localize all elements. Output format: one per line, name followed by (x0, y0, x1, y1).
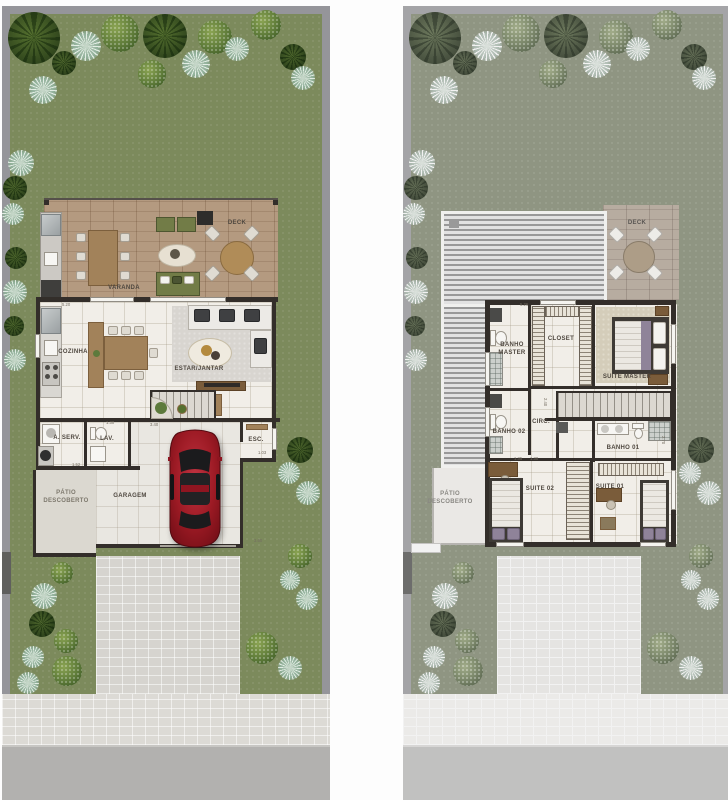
round-table-dark (211, 351, 220, 360)
fern-plant-icon (278, 462, 300, 484)
fern-plant-icon (2, 203, 24, 225)
burner (53, 374, 58, 379)
car (168, 427, 222, 549)
esc-shelf (246, 424, 268, 430)
window (540, 300, 576, 305)
tree-icon (430, 611, 456, 637)
room-label-a-serv: A. SERV. (50, 435, 84, 443)
fern-plant-icon (697, 588, 719, 610)
floor-plan-image: VARANDA DECK (0, 0, 728, 800)
wall (592, 421, 595, 462)
chair (120, 252, 130, 261)
fern-plant-icon (403, 203, 425, 225)
patio-wall (33, 553, 96, 557)
tree-icon (251, 10, 281, 40)
wall (590, 461, 593, 542)
tree-icon (287, 437, 313, 463)
fern-plant-icon (8, 150, 34, 176)
tree-icon (689, 544, 713, 568)
deck-post (44, 200, 49, 205)
pillow (653, 322, 666, 344)
dimension: 2.40 (543, 398, 547, 406)
ground-floor-plan: VARANDA DECK (0, 0, 364, 800)
outdoor-armchair (156, 217, 175, 232)
tree-icon (246, 632, 278, 664)
wall (531, 386, 676, 389)
pillow (655, 528, 666, 540)
tree-icon (52, 51, 76, 75)
wall (240, 458, 243, 548)
fern-plant-icon (697, 481, 721, 505)
tree-icon (502, 14, 540, 52)
tree-icon (143, 14, 187, 58)
fern-plant-icon (626, 37, 650, 61)
tree-icon (4, 316, 24, 336)
window (496, 542, 524, 547)
wardrobe (598, 463, 664, 476)
esc-window (272, 428, 277, 450)
pillow (643, 528, 654, 540)
tree-icon (652, 10, 682, 40)
fern-plant-icon (296, 481, 320, 505)
tree-icon (29, 611, 55, 637)
sink (615, 425, 623, 433)
chair (134, 371, 144, 380)
fern-plant-icon (278, 656, 302, 680)
fern-plant-icon (432, 583, 458, 609)
window (640, 542, 666, 547)
metal-roof-wing (441, 304, 491, 468)
fern-plant-icon (423, 646, 445, 668)
wall (240, 422, 243, 442)
fern-plant-icon (404, 280, 428, 304)
dimension: 1.35 (514, 457, 522, 461)
fridge (41, 308, 61, 334)
tree-icon (54, 629, 78, 653)
toilet-bowl (495, 415, 507, 429)
dimension: 2.70 (661, 436, 665, 444)
tree-icon (453, 51, 477, 75)
tree-icon (688, 437, 714, 463)
sofa-cushion (244, 309, 260, 322)
room-label-banho-02: BANHO 02 (492, 429, 526, 437)
tree-icon (3, 176, 27, 200)
fern-plant-icon (430, 76, 458, 104)
fern-plant-icon (182, 50, 210, 78)
chair (108, 326, 118, 335)
outdoor-fridge (41, 214, 61, 236)
room-label-deck: DECK (222, 220, 252, 228)
room-label-garagem: GARAGEM (106, 493, 154, 501)
fern-plant-icon (418, 672, 440, 694)
tree-icon (406, 247, 428, 269)
lav-sink (90, 446, 106, 462)
deck-post (273, 200, 278, 205)
sofa-cushion (254, 338, 267, 354)
wall (128, 422, 131, 466)
fern-plant-icon (583, 50, 611, 78)
shower (489, 436, 503, 454)
toilet-bowl (634, 428, 643, 439)
pouf (600, 517, 616, 530)
outdoor-armchair (177, 217, 196, 232)
bbq-grill (197, 211, 213, 225)
room-label-closet: CLOSET (544, 336, 578, 344)
patio-floor (36, 470, 96, 557)
island-plant (93, 350, 100, 357)
fern-plant-icon (280, 570, 300, 590)
tree-icon (52, 656, 82, 686)
pillow (653, 348, 666, 370)
outdoor-sink (44, 252, 58, 266)
window (671, 470, 676, 510)
dimension: 5.20 (62, 303, 70, 307)
dimension: 3.60 (254, 539, 262, 543)
sliding-door (90, 297, 134, 302)
coffee-table (170, 249, 180, 259)
room-label-banho-master: BANHO MASTER (496, 342, 528, 358)
fern-plant-icon (225, 37, 249, 61)
tree-icon (288, 544, 312, 568)
patio-wall (33, 470, 36, 557)
chair (149, 348, 158, 358)
burner (53, 365, 58, 370)
tree-icon (455, 629, 479, 653)
room-label-cozinha: COZINHA (56, 349, 90, 357)
metal-roof (441, 211, 607, 307)
pillow (492, 528, 505, 540)
wall (240, 458, 276, 462)
fern-plant-icon (22, 646, 44, 668)
tree-icon (453, 656, 483, 686)
wall (592, 305, 595, 386)
fern-plant-icon (681, 570, 701, 590)
burner (45, 374, 50, 379)
sofa-cushion (194, 309, 210, 322)
wardrobe (579, 306, 592, 386)
sofa-pillow (160, 276, 170, 284)
pillow (507, 528, 520, 540)
room-label-circ: CIRC. (528, 419, 554, 427)
wall (36, 466, 140, 470)
fern-plant-icon (692, 66, 716, 90)
roof-corner-tab (449, 220, 459, 228)
chair (120, 271, 130, 280)
tree-icon (51, 562, 73, 584)
sofa-pillow (172, 276, 182, 284)
sofa-cushion (219, 309, 235, 322)
tree-icon (138, 60, 166, 88)
tree-icon (452, 562, 474, 584)
desk-chair (606, 500, 616, 510)
fern-plant-icon (472, 31, 502, 61)
wall (528, 305, 531, 455)
fern-plant-icon (679, 462, 701, 484)
room-label-patio: PÁTIO DESCOBERTO (42, 490, 90, 506)
sofa-pillow (184, 276, 194, 284)
fern-plant-icon (4, 349, 26, 371)
room-label-estar-jantar: ESTAR/JANTAR (172, 366, 226, 374)
wardrobe (566, 462, 590, 540)
mattress (643, 483, 666, 527)
shower (648, 421, 671, 441)
chair (134, 326, 144, 335)
bed-runner (641, 321, 651, 370)
chair (120, 233, 130, 242)
room-label-banho-01: BANHO 01 (604, 445, 642, 453)
wardrobe (532, 306, 545, 386)
fern-plant-icon (29, 76, 57, 104)
dimension: 1.52 (72, 463, 80, 467)
mattress (492, 481, 520, 527)
wall (485, 300, 676, 305)
dining-table (104, 336, 148, 370)
fern-plant-icon (296, 588, 318, 610)
room-label-esc: ESC. (246, 437, 266, 445)
fern-plant-icon (31, 583, 57, 609)
staircase (556, 391, 672, 419)
tree-icon (5, 247, 27, 269)
burner (45, 365, 50, 370)
fern-plant-icon (71, 31, 101, 61)
tree-icon (544, 14, 588, 58)
plant (155, 402, 167, 414)
wall (485, 388, 531, 391)
upper-floor-plan: DECK PÁTIO DESCOBERTO 1.52 (364, 0, 728, 800)
chair (108, 371, 118, 380)
nightstand (655, 306, 669, 316)
laundry-sink (40, 450, 51, 461)
chair (121, 371, 131, 380)
dimension: 5.26 (520, 303, 528, 307)
wall (84, 422, 87, 466)
fern-plant-icon (409, 150, 435, 176)
tree-icon (405, 316, 425, 336)
wardrobe (545, 306, 579, 317)
chair (76, 271, 86, 280)
chair (121, 326, 131, 335)
outdoor-grill (41, 280, 61, 298)
fern-plant-icon (17, 672, 39, 694)
tree-icon (409, 12, 461, 64)
room-label-varanda: VARANDA (100, 285, 148, 293)
potted-plant (177, 404, 187, 414)
tree-icon (647, 632, 679, 664)
dimension: 1.30 (530, 457, 538, 461)
dimension: 1.30 (106, 421, 114, 425)
dimension: 3.40 (150, 423, 158, 427)
fern-plant-icon (3, 280, 27, 304)
room-label-suite-01: SUITE 01 (592, 484, 628, 492)
tree-icon (101, 14, 139, 52)
utility-box (556, 422, 568, 433)
vanity (490, 394, 502, 408)
room-label-suite-02: SUITE 02 (522, 486, 558, 494)
outdoor-dining-table (88, 230, 118, 286)
tree-icon (404, 176, 428, 200)
sliding-door (150, 297, 226, 302)
deck-edge (44, 198, 278, 200)
tree-icon (8, 12, 60, 64)
tv (204, 383, 240, 387)
sink (601, 425, 609, 433)
room-label-suite-master: SUITE MASTER (602, 374, 652, 382)
fern-plant-icon (291, 66, 315, 90)
chair (76, 252, 86, 261)
window (671, 324, 676, 364)
vanity (490, 308, 502, 322)
tree-icon (539, 60, 567, 88)
room-label-lav: LAV. (96, 436, 118, 444)
fern-plant-icon (405, 349, 427, 371)
dimension: 1.03 (258, 451, 266, 455)
chair (76, 233, 86, 242)
fern-plant-icon (679, 656, 703, 680)
